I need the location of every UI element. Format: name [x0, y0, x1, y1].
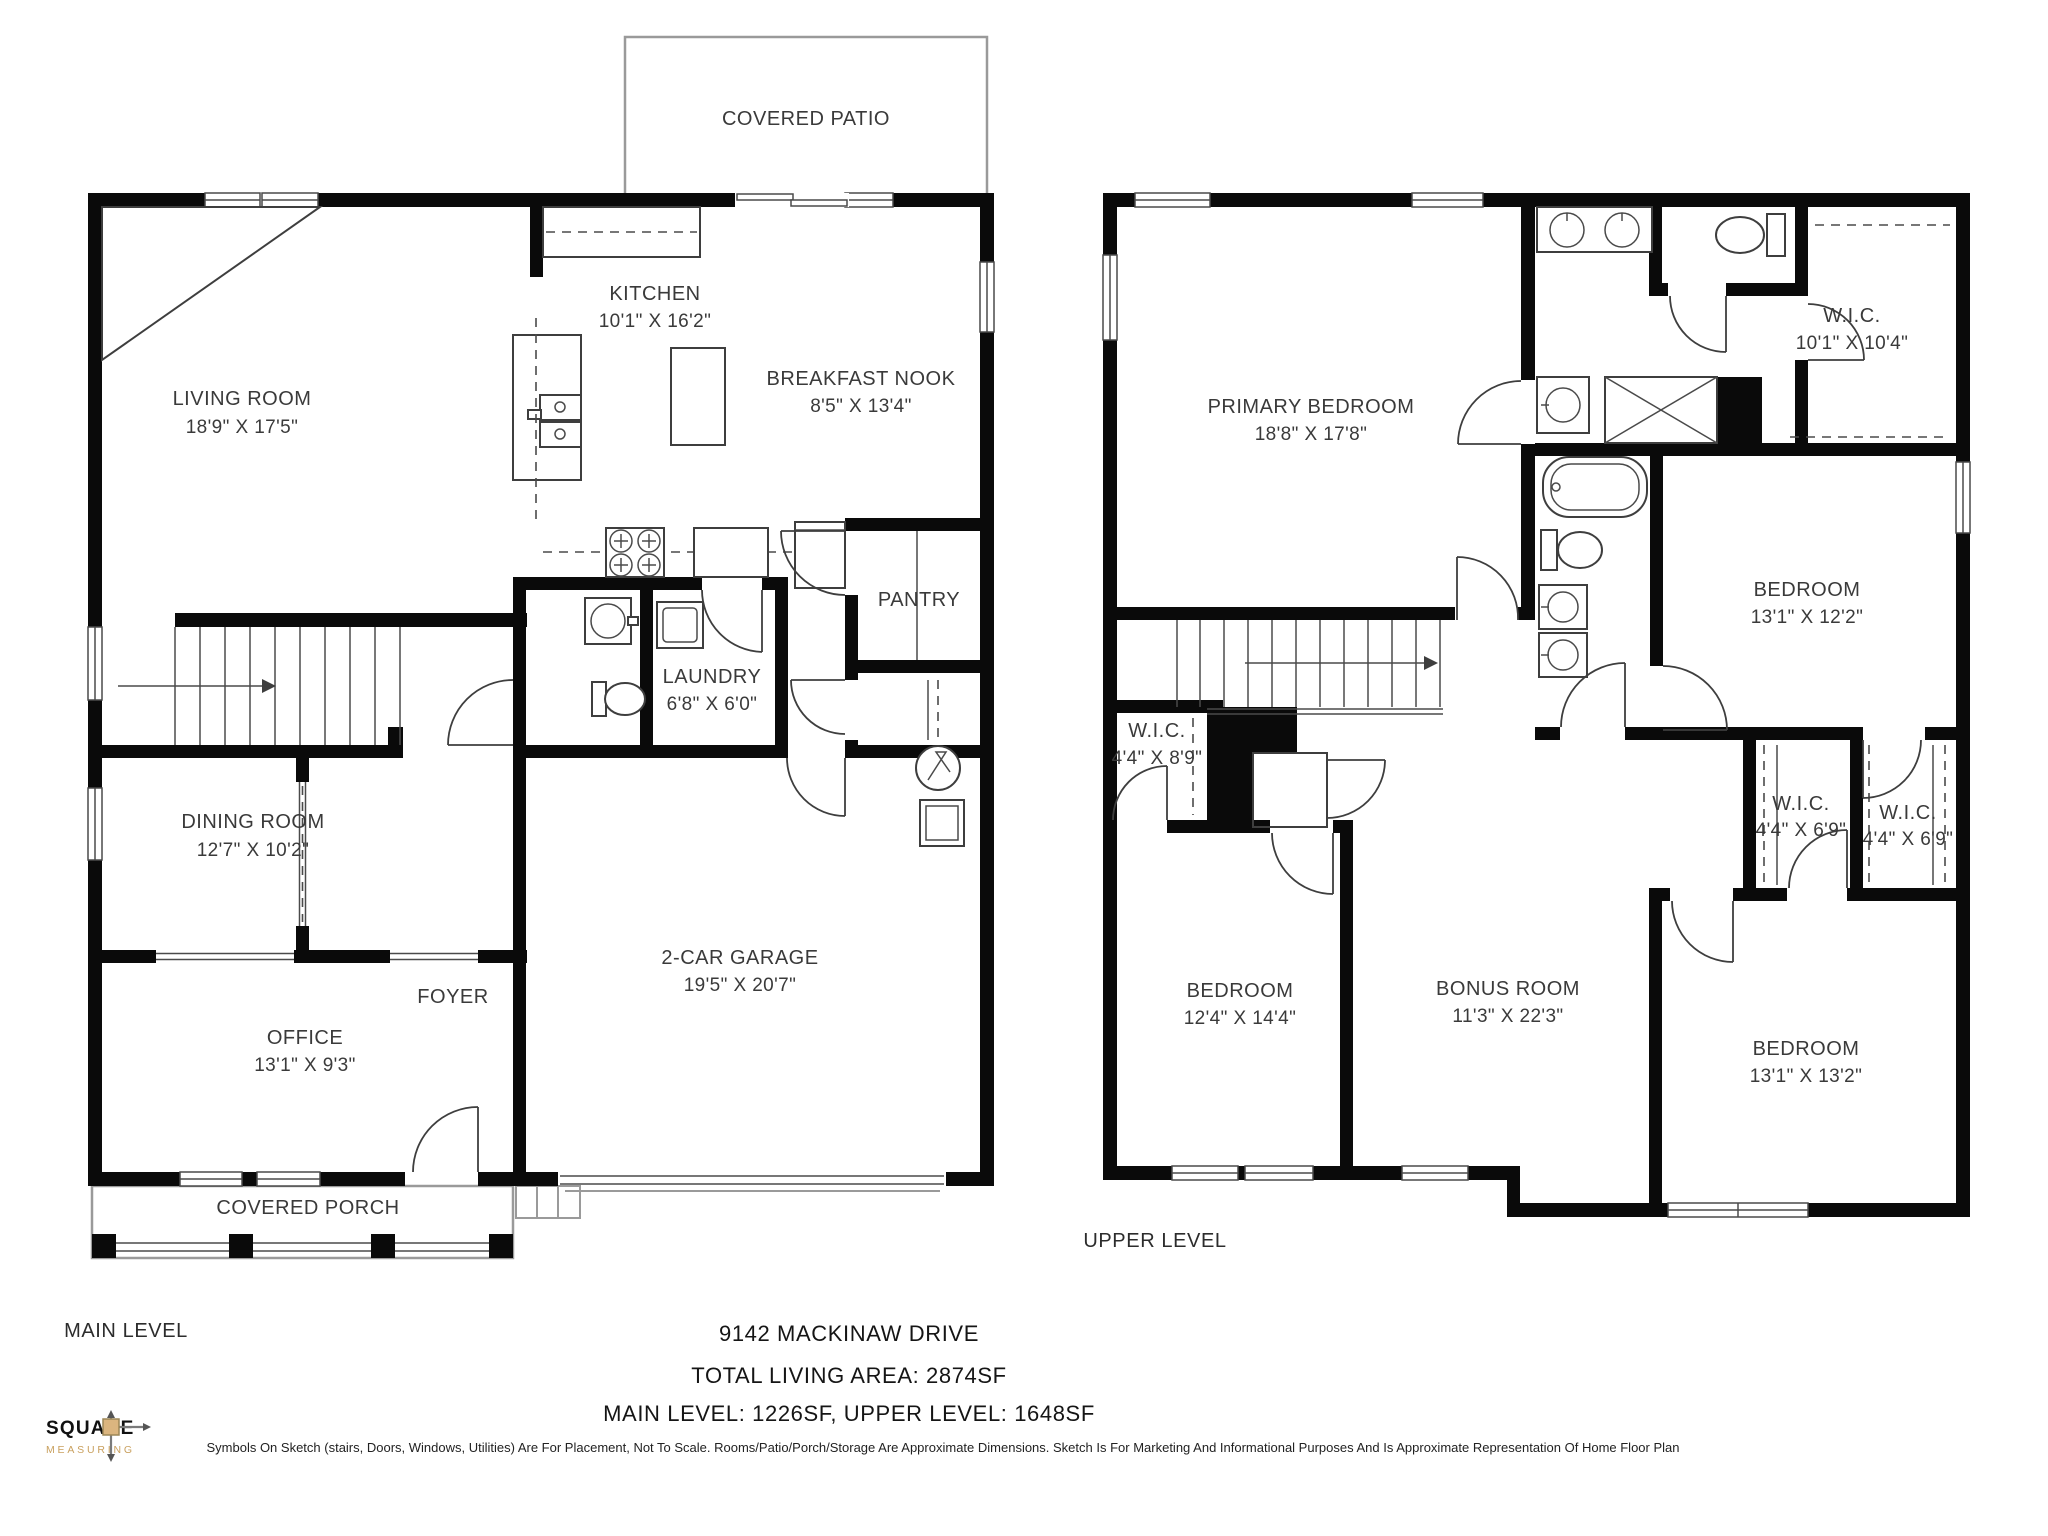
upper-level-title: UPPER LEVEL: [1083, 1230, 1226, 1252]
bedroom4-door-arc: [1672, 901, 1733, 962]
counter: [694, 528, 768, 577]
bedroom2-door-arc: [1663, 666, 1727, 730]
hall-bath: [1539, 457, 1647, 677]
kitchen-sink: [540, 395, 581, 420]
upper-level-plan: PRIMARY BEDROOM 18'8" X 17'8" W.I.C. 10'…: [1083, 193, 1970, 1252]
disclaimer-text: Symbols On Sketch (stairs, Doors, Window…: [206, 1440, 1679, 1455]
primary-wic-dims: 10'1" X 10'4": [1796, 333, 1909, 354]
primary-bedroom-label: PRIMARY BEDROOM: [1208, 396, 1415, 418]
half-bath: [585, 598, 645, 716]
porch-pillar: [229, 1234, 253, 1258]
stairs-arrow: [1424, 656, 1438, 670]
stairs-main: [118, 627, 400, 745]
toilet-room-door-arc: [1670, 296, 1726, 352]
sink: [585, 598, 631, 644]
pantry-closet: [917, 531, 938, 740]
floor-plan-canvas: COVERED PATIO LIVING ROOM 18'9" X 17'5" …: [0, 0, 2048, 1536]
hall-wic-label: W.I.C.: [1128, 720, 1185, 742]
bedroom2-dims: 13'1" X 12'2": [1751, 607, 1864, 628]
garage-utilities: [916, 746, 964, 846]
main-level-plan: COVERED PATIO LIVING ROOM 18'9" X 17'5" …: [64, 37, 994, 1342]
primary-bedroom-door-arc: [1457, 557, 1518, 620]
logo-name: SQUARE: [46, 1418, 135, 1439]
toilet-bowl: [605, 683, 645, 715]
wic-right-door-arc: [1863, 740, 1921, 798]
bonus-room-label: BONUS ROOM: [1436, 978, 1580, 1000]
bedroom3-dims: 12'4" X 14'4": [1184, 1008, 1297, 1029]
footer: 9142 MACKINAW DRIVE TOTAL LIVING AREA: 2…: [206, 1321, 1679, 1455]
garage-label: 2-CAR GARAGE: [661, 947, 818, 969]
bonus-room-dims: 11'3" X 22'3": [1452, 1006, 1563, 1027]
floor-plan-page: { "page": { "address_line": "9142 MACKIN…: [0, 0, 2048, 1536]
half-bath-door-arc: [448, 680, 513, 745]
toilet-bowl: [1716, 217, 1764, 253]
breakfast-nook-label: BREAKFAST NOOK: [767, 368, 956, 390]
bedroom4-dims: 13'1" X 13'2": [1750, 1066, 1863, 1087]
bedroom2-label: BEDROOM: [1754, 579, 1861, 601]
breakfast-nook-dims: 8'5" X 13'4": [810, 396, 912, 417]
laundry-door-arc: [702, 590, 762, 652]
laundry-label: LAUNDRY: [663, 666, 762, 688]
toilet-bowl: [1558, 532, 1602, 568]
double-vanity: [1537, 207, 1652, 252]
closet-door-arc: [1327, 760, 1385, 818]
garage-door: [560, 1176, 944, 1191]
stairs-upper: [1177, 620, 1443, 714]
office-dims: 13'1" X 9'3": [254, 1055, 356, 1076]
cased-openings: [156, 782, 478, 960]
living-room-dims: 18'9" X 17'5": [186, 417, 299, 438]
bedroom3-label: BEDROOM: [1187, 980, 1294, 1002]
fireplace-corner: [102, 207, 320, 360]
main-level-title: MAIN LEVEL: [64, 1320, 188, 1342]
toilet-tank: [1767, 214, 1785, 256]
bathtub: [1543, 457, 1647, 517]
stair-chase: [1207, 753, 1253, 827]
total-area-line: TOTAL LIVING AREA: 2874SF: [691, 1363, 1006, 1388]
logo-tagline: MEASURING: [46, 1444, 135, 1456]
faucet: [528, 410, 541, 419]
front-door-arc: [413, 1107, 478, 1172]
bedroom3-door-arc: [1272, 833, 1333, 894]
wic-right-label: W.I.C.: [1879, 802, 1936, 824]
levels-line: MAIN LEVEL: 1226SF, UPPER LEVEL: 1648SF: [603, 1401, 1095, 1426]
pantry-label: PANTRY: [878, 589, 960, 611]
porch-pillar: [92, 1234, 116, 1258]
closet-door-arc: [791, 680, 845, 734]
garage-dims: 19'5" X 20'7": [684, 975, 797, 996]
office-label: OFFICE: [267, 1027, 343, 1049]
kitchen-label: KITCHEN: [609, 283, 700, 305]
chase: [1717, 377, 1762, 443]
toilet-tank: [592, 682, 606, 716]
primary-wic-label: W.I.C.: [1823, 305, 1880, 327]
dining-room-dims: 12'7" X 10'2": [197, 840, 310, 861]
laundry-fixtures: [657, 602, 703, 648]
stove: [606, 528, 664, 577]
primary-bath-door-arc: [1458, 381, 1521, 444]
faucet: [628, 617, 638, 625]
bedroom4-label: BEDROOM: [1753, 1038, 1860, 1060]
kitchen-dims: 10'1" X 16'2": [599, 311, 712, 332]
square-measuring-logo: SQUARE MEASURING: [46, 1410, 151, 1462]
wic-left-label: W.I.C.: [1772, 793, 1829, 815]
foyer-label: FOYER: [417, 986, 488, 1008]
covered-porch-label: COVERED PORCH: [216, 1197, 399, 1219]
primary-bedroom-dims: 18'8" X 17'8": [1255, 424, 1368, 445]
porch-pillar: [489, 1234, 513, 1258]
dining-room-label: DINING ROOM: [181, 811, 324, 833]
toilet-tank: [1541, 530, 1557, 570]
covered-patio-label: COVERED PATIO: [722, 108, 890, 130]
living-room-label: LIVING ROOM: [173, 388, 312, 410]
wic-right-dims: 4'4" X 6'9": [1863, 829, 1954, 850]
hall-wic-door-arc: [1113, 766, 1167, 820]
address-line: 9142 MACKINAW DRIVE: [719, 1321, 979, 1346]
wic-left-dims: 4'4" X 6'9": [1756, 820, 1847, 841]
stairs-arrow: [262, 679, 276, 693]
hall-closet: [1253, 753, 1385, 827]
garage-entry-door-arc: [787, 758, 845, 816]
kitchen-island: [671, 348, 725, 445]
laundry-dims: 6'8" X 6'0": [667, 694, 758, 715]
porch-pillar: [371, 1234, 395, 1258]
hall-wic-dims: 4'4" X 8'9": [1112, 748, 1203, 769]
